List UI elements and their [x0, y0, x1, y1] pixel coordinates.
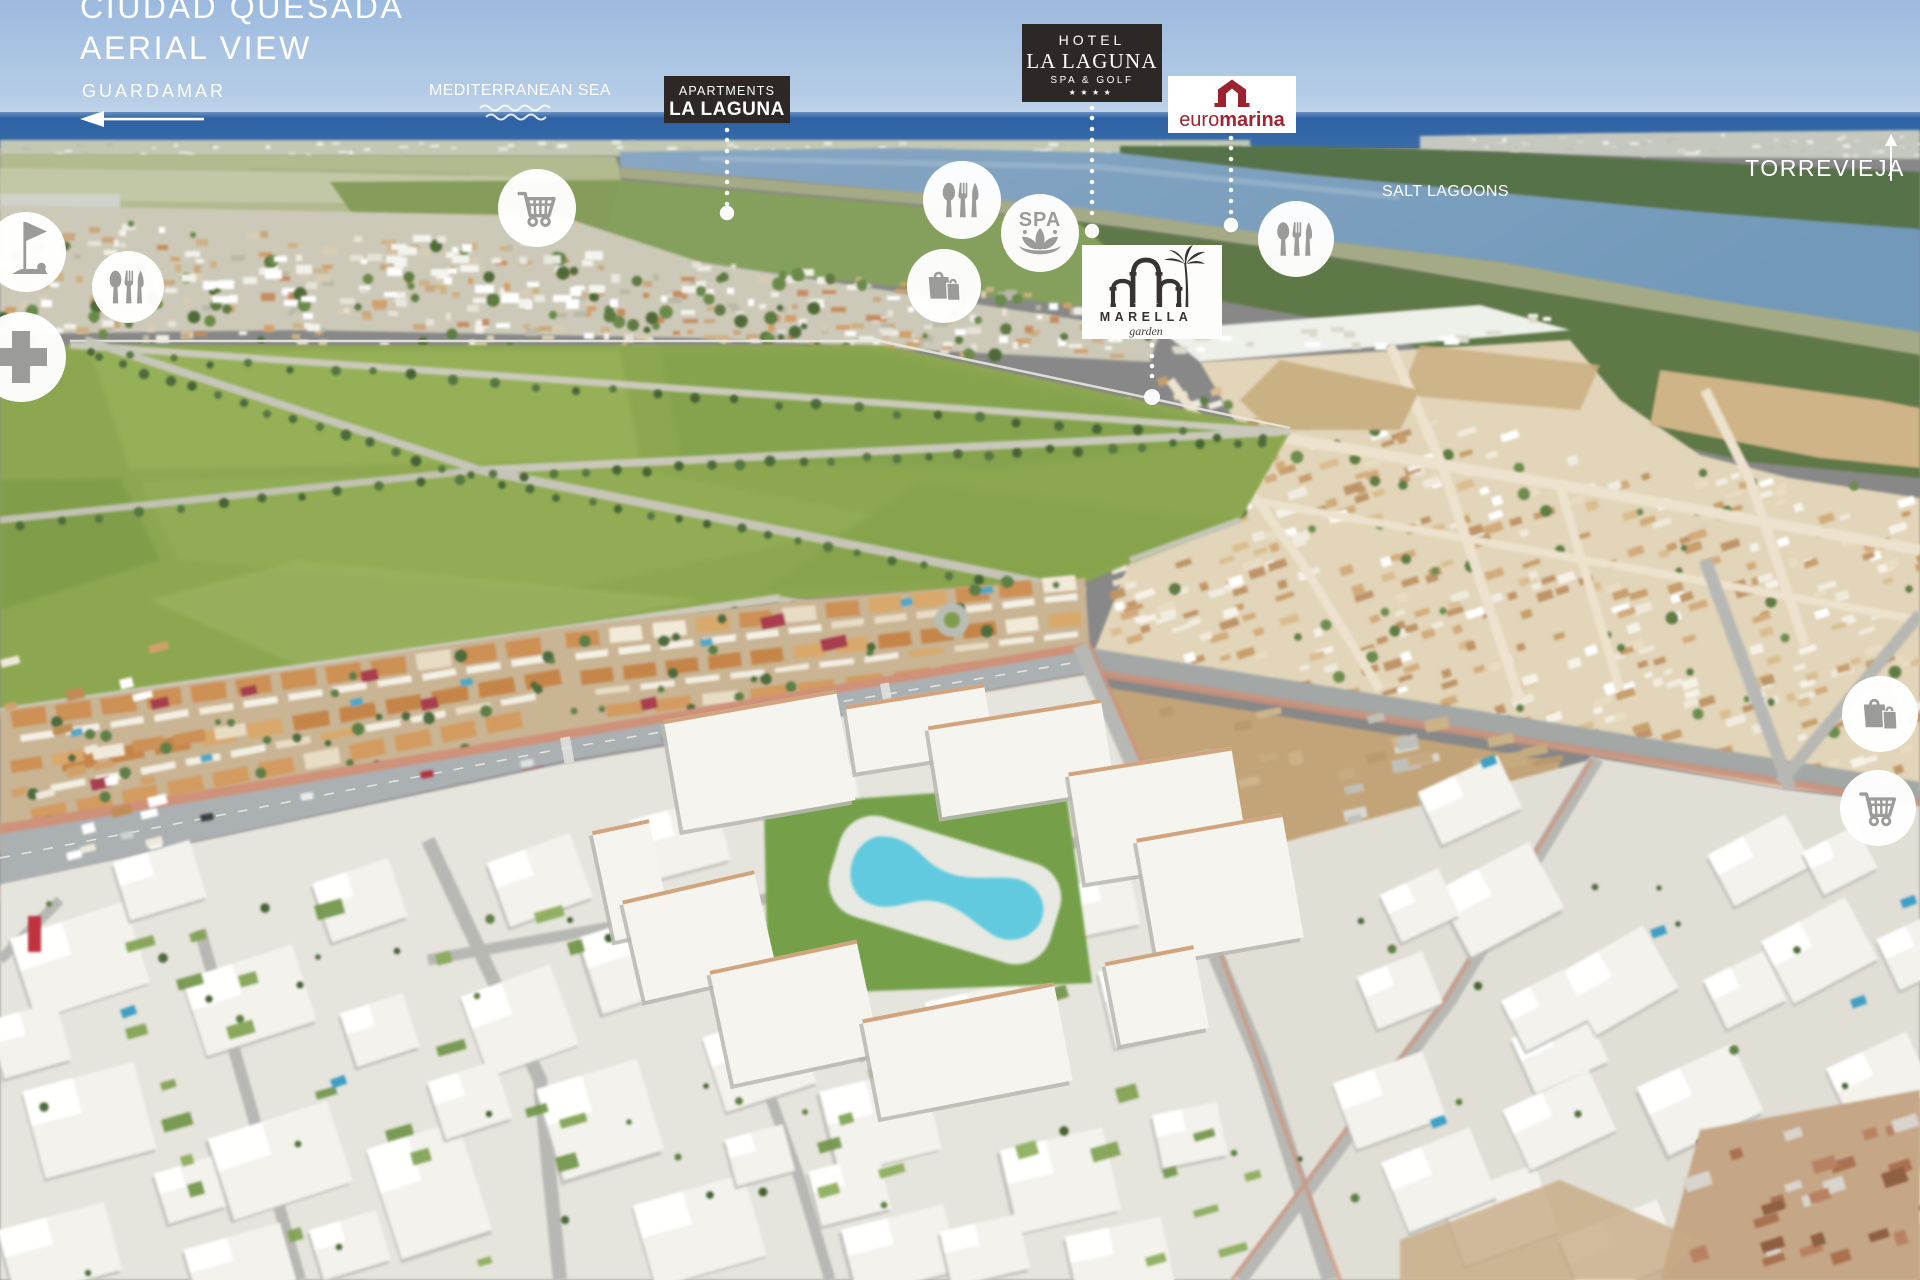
svg-text:SPA: SPA [1019, 209, 1062, 231]
